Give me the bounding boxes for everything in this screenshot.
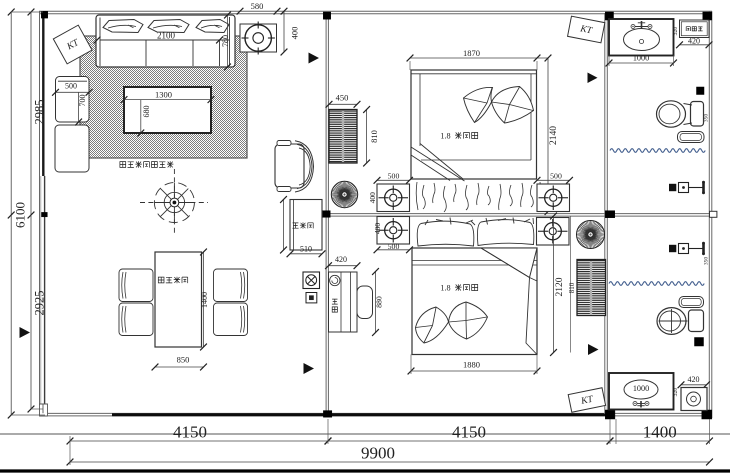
svg-text:6100: 6100 (13, 202, 28, 228)
svg-text:510: 510 (300, 244, 312, 253)
svg-text:500: 500 (550, 171, 562, 180)
svg-text:1870: 1870 (463, 48, 480, 58)
svg-text:1400: 1400 (643, 423, 677, 442)
svg-text:320: 320 (673, 27, 679, 36)
svg-text:2925: 2925 (33, 291, 47, 316)
svg-text:1300: 1300 (155, 90, 172, 100)
svg-text:320: 320 (673, 388, 679, 397)
svg-text:500: 500 (388, 242, 400, 251)
svg-text:1400: 1400 (200, 292, 209, 308)
svg-text:680: 680 (142, 106, 151, 118)
svg-text:420: 420 (688, 37, 700, 46)
svg-text:4150: 4150 (173, 423, 207, 442)
svg-text:400: 400 (368, 192, 377, 204)
svg-text:2100: 2100 (157, 30, 176, 40)
svg-text:420: 420 (688, 375, 700, 384)
svg-text:880: 880 (375, 296, 384, 308)
svg-text:1.8: 1.8 (440, 284, 450, 293)
svg-text:400: 400 (373, 223, 382, 235)
svg-text:420: 420 (335, 255, 347, 264)
svg-text:400: 400 (290, 27, 300, 40)
svg-text:500: 500 (65, 81, 77, 90)
svg-text:4150: 4150 (452, 423, 486, 442)
svg-text:1000: 1000 (633, 384, 649, 393)
svg-text:2140: 2140 (549, 126, 559, 145)
svg-text:850: 850 (177, 355, 190, 365)
svg-text:1880: 1880 (463, 359, 480, 369)
svg-text:2985: 2985 (33, 100, 47, 125)
svg-text:2120: 2120 (555, 277, 565, 296)
svg-text:9900: 9900 (361, 444, 395, 463)
svg-text:350: 350 (704, 257, 710, 266)
svg-text:780: 780 (221, 35, 230, 47)
svg-text:1000: 1000 (633, 53, 649, 62)
svg-text:350: 350 (704, 114, 710, 123)
svg-text:700: 700 (78, 95, 87, 107)
svg-text:810: 810 (369, 130, 379, 143)
svg-text:810: 810 (568, 282, 576, 293)
svg-text:580: 580 (251, 1, 264, 11)
svg-text:1.8: 1.8 (440, 132, 450, 141)
svg-text:450: 450 (336, 93, 349, 103)
svg-text:500: 500 (388, 171, 400, 180)
